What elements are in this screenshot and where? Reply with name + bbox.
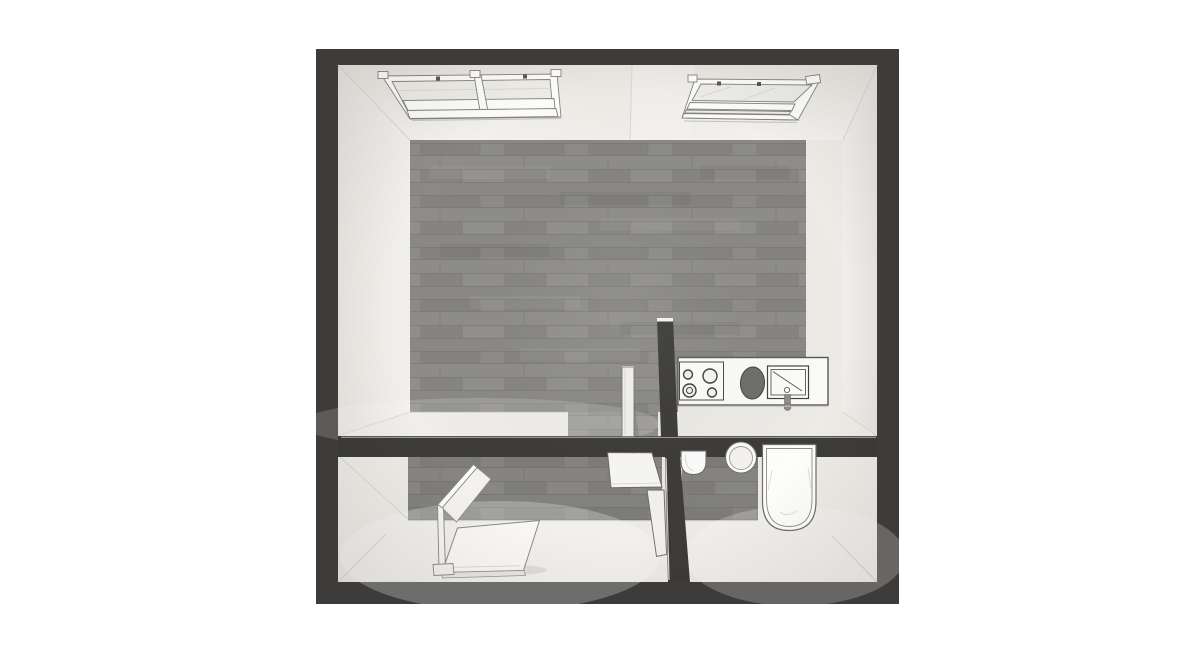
apartment-floor-plan (316, 49, 899, 604)
ambient-vignette (338, 65, 877, 582)
floor-plan-canvas (0, 0, 1200, 650)
floor-plan-render (316, 49, 899, 604)
